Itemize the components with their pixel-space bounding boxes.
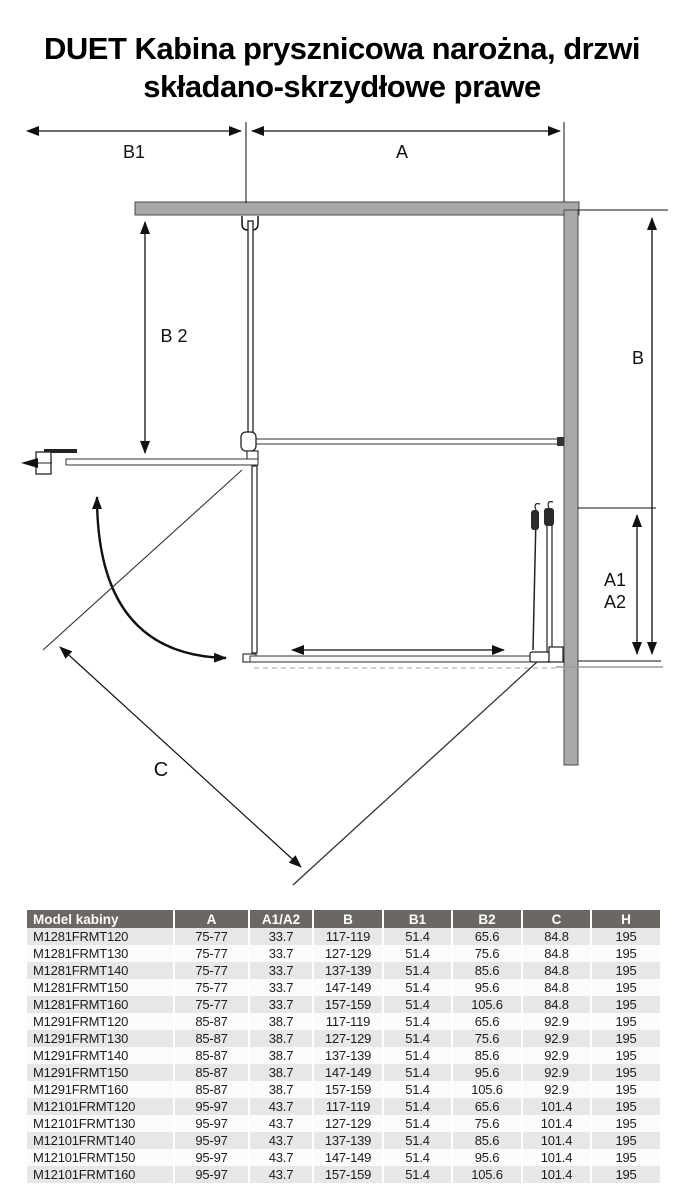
right-wall [564,210,578,765]
table-header-row: Model kabinyAA1/A2BB1B2CH [27,910,660,928]
value-cell: 51.4 [383,996,452,1013]
label-b2: B 2 [160,326,187,346]
open-door-panel [66,459,258,465]
value-cell: 195 [591,1149,660,1166]
value-cell: 84.8 [522,928,591,945]
table-row: M1281FRMT12075-7733.7117-11951.465.684.8… [27,928,660,945]
value-cell: 51.4 [383,1064,452,1081]
value-cell: 65.6 [452,1098,522,1115]
value-cell: 43.7 [249,1132,313,1149]
dimensions-table-container: Model kabinyAA1/A2BB1B2CH M1281FRMT12075… [27,910,660,1183]
value-cell: 147-149 [313,979,383,996]
value-cell: 38.7 [249,1081,313,1098]
value-cell: 92.9 [522,1047,591,1064]
model-cell: M1291FRMT150 [27,1064,174,1081]
value-cell: 85-87 [174,1030,249,1047]
table-row: M1291FRMT15085-8738.7147-14951.495.692.9… [27,1064,660,1081]
table-row: M1281FRMT16075-7733.7157-15951.4105.684.… [27,996,660,1013]
model-cell: M1291FRMT160 [27,1081,174,1098]
value-cell: 33.7 [249,979,313,996]
value-cell: 33.7 [249,928,313,945]
value-cell: 117-119 [313,1098,383,1115]
table-header-cell: B2 [452,910,522,928]
folded-door-leaf-1 [533,516,536,650]
value-cell: 85-87 [174,1047,249,1064]
model-cell: M1281FRMT130 [27,945,174,962]
model-cell: M1291FRMT120 [27,1013,174,1030]
table-row: M1291FRMT16085-8738.7157-15951.4105.692.… [27,1081,660,1098]
value-cell: 101.4 [522,1098,591,1115]
model-cell: M1291FRMT130 [27,1030,174,1047]
table-row: M1281FRMT15075-7733.7147-14951.495.684.8… [27,979,660,996]
value-cell: 75-77 [174,996,249,1013]
value-cell: 85.6 [452,1132,522,1149]
lower-side-panel [252,466,257,653]
value-cell: 195 [591,928,660,945]
page-title-line1: DUET Kabina prysznicowa narożna, drzwi [0,30,684,68]
value-cell: 195 [591,996,660,1013]
page-title-line2: składano-skrzydłowe prawe [0,68,684,106]
value-cell: 43.7 [249,1149,313,1166]
value-cell: 43.7 [249,1166,313,1183]
value-cell: 95-97 [174,1166,249,1183]
value-cell: 101.4 [522,1115,591,1132]
value-cell: 33.7 [249,996,313,1013]
value-cell: 195 [591,1081,660,1098]
table-header-cell: H [591,910,660,928]
value-cell: 147-149 [313,1149,383,1166]
value-cell: 75-77 [174,945,249,962]
value-cell: 95-97 [174,1149,249,1166]
value-cell: 92.9 [522,1030,591,1047]
folded-door-leaf-2 [547,515,552,652]
model-cell: M12101FRMT120 [27,1098,174,1115]
value-cell: 95.6 [452,979,522,996]
value-cell: 51.4 [383,1115,452,1132]
value-cell: 51.4 [383,1013,452,1030]
value-cell: 137-139 [313,1132,383,1149]
value-cell: 84.8 [522,945,591,962]
value-cell: 95.6 [452,1064,522,1081]
value-cell: 51.4 [383,1166,452,1183]
value-cell: 137-139 [313,1047,383,1064]
table-header-cell: B [313,910,383,928]
value-cell: 38.7 [249,1030,313,1047]
door-pivot-block [530,652,549,662]
table-row: M12101FRMT16095-9743.7157-15951.4105.610… [27,1166,660,1183]
value-cell: 195 [591,1064,660,1081]
table-header-cell: Model kabiny [27,910,174,928]
value-cell: 157-159 [313,996,383,1013]
table-header-cell: A [174,910,249,928]
open-direction-arrow [21,458,38,468]
value-cell: 75-77 [174,962,249,979]
value-cell: 38.7 [249,1047,313,1064]
value-cell: 92.9 [522,1064,591,1081]
value-cell: 195 [591,945,660,962]
value-cell: 137-139 [313,962,383,979]
value-cell: 65.6 [452,928,522,945]
value-cell: 84.8 [522,979,591,996]
table-row: M12101FRMT13095-9743.7127-12951.475.6101… [27,1115,660,1132]
door-pivot-wall-bracket [549,647,563,662]
value-cell: 195 [591,962,660,979]
value-cell: 195 [591,1098,660,1115]
value-cell: 85-87 [174,1013,249,1030]
table-row: M1291FRMT14085-8738.7137-13951.485.692.9… [27,1047,660,1064]
fixed-panel [248,221,253,436]
value-cell: 51.4 [383,945,452,962]
model-cell: M1291FRMT140 [27,1047,174,1064]
value-cell: 105.6 [452,1166,522,1183]
value-cell: 95.6 [452,1149,522,1166]
value-cell: 51.4 [383,1047,452,1064]
folded-door-hook-1 [535,504,540,510]
value-cell: 195 [591,1047,660,1064]
value-cell: 33.7 [249,945,313,962]
table-row: M1281FRMT13075-7733.7127-12951.475.684.8… [27,945,660,962]
table-row: M12101FRMT15095-9743.7147-14951.495.6101… [27,1149,660,1166]
value-cell: 51.4 [383,979,452,996]
table-header-cell: C [522,910,591,928]
value-cell: 51.4 [383,962,452,979]
value-cell: 51.4 [383,1132,452,1149]
label-a2: A2 [604,592,626,612]
value-cell: 157-159 [313,1166,383,1183]
value-cell: 75.6 [452,1115,522,1132]
table-header-cell: A1/A2 [249,910,313,928]
value-cell: 105.6 [452,1081,522,1098]
table-row: M1291FRMT12085-8738.7117-11951.465.692.9… [27,1013,660,1030]
value-cell: 195 [591,1115,660,1132]
table-row: M12101FRMT14095-9743.7137-13951.485.6101… [27,1132,660,1149]
table-body: M1281FRMT12075-7733.7117-11951.465.684.8… [27,928,660,1183]
value-cell: 75-77 [174,928,249,945]
value-cell: 195 [591,1132,660,1149]
value-cell: 84.8 [522,996,591,1013]
value-cell: 195 [591,979,660,996]
top-wall [135,202,579,215]
value-cell: 127-129 [313,1115,383,1132]
label-c: C [154,759,168,781]
label-a1: A1 [604,570,626,590]
model-cell: M12101FRMT150 [27,1149,174,1166]
support-bar-wall-mount [557,437,564,446]
value-cell: 43.7 [249,1098,313,1115]
value-cell: 95-97 [174,1098,249,1115]
table-row: M1281FRMT14075-7733.7137-13951.485.684.8… [27,962,660,979]
folded-door-cap-1 [531,510,539,530]
value-cell: 51.4 [383,1149,452,1166]
value-cell: 127-129 [313,945,383,962]
value-cell: 195 [591,1030,660,1047]
value-cell: 101.4 [522,1132,591,1149]
value-cell: 33.7 [249,962,313,979]
label-b1: B1 [123,142,145,162]
table-row: M12101FRMT12095-9743.7117-11951.465.6101… [27,1098,660,1115]
folded-door-hook-2 [548,502,553,508]
value-cell: 147-149 [313,1064,383,1081]
value-cell: 85.6 [452,962,522,979]
support-bar [255,439,563,444]
value-cell: 85.6 [452,1047,522,1064]
value-cell: 127-129 [313,1030,383,1047]
shower-cabin-diagram: B1 A B 2 B A1 A2 C [0,115,684,905]
value-cell: 38.7 [249,1013,313,1030]
value-cell: 51.4 [383,1098,452,1115]
value-cell: 65.6 [452,1013,522,1030]
value-cell: 195 [591,1013,660,1030]
dimensions-table: Model kabinyAA1/A2BB1B2CH M1281FRMT12075… [27,910,660,1183]
page-title: DUET Kabina prysznicowa narożna, drzwi s… [0,30,684,106]
value-cell: 95-97 [174,1115,249,1132]
value-cell: 117-119 [313,1013,383,1030]
value-cell: 38.7 [249,1064,313,1081]
value-cell: 75.6 [452,1030,522,1047]
value-cell: 75-77 [174,979,249,996]
value-cell: 51.4 [383,1081,452,1098]
model-cell: M1281FRMT120 [27,928,174,945]
value-cell: 195 [591,1166,660,1183]
table-header-cell: B1 [383,910,452,928]
value-cell: 84.8 [522,962,591,979]
value-cell: 157-159 [313,1081,383,1098]
model-cell: M12101FRMT160 [27,1166,174,1183]
model-cell: M1281FRMT160 [27,996,174,1013]
value-cell: 51.4 [383,1030,452,1047]
value-cell: 101.4 [522,1149,591,1166]
folded-door-cap-2 [544,508,554,526]
dim-arrow-c [60,647,301,867]
door-swing-arc [97,497,226,658]
model-cell: M1281FRMT150 [27,979,174,996]
value-cell: 95-97 [174,1132,249,1149]
value-cell: 105.6 [452,996,522,1013]
value-cell: 75.6 [452,945,522,962]
label-a: A [396,142,408,162]
value-cell: 85-87 [174,1064,249,1081]
value-cell: 51.4 [383,928,452,945]
model-cell: M12101FRMT140 [27,1132,174,1149]
label-b: B [632,348,644,368]
model-cell: M12101FRMT130 [27,1115,174,1132]
door-hinge [241,432,256,451]
door-diagonal-right [293,662,537,885]
value-cell: 92.9 [522,1081,591,1098]
value-cell: 92.9 [522,1013,591,1030]
model-cell: M1281FRMT140 [27,962,174,979]
value-cell: 43.7 [249,1115,313,1132]
table-row: M1291FRMT13085-8738.7127-12951.475.692.9… [27,1030,660,1047]
value-cell: 117-119 [313,928,383,945]
bottom-sill [250,656,564,662]
value-cell: 85-87 [174,1081,249,1098]
value-cell: 101.4 [522,1166,591,1183]
door-diagonal-left [43,470,242,650]
